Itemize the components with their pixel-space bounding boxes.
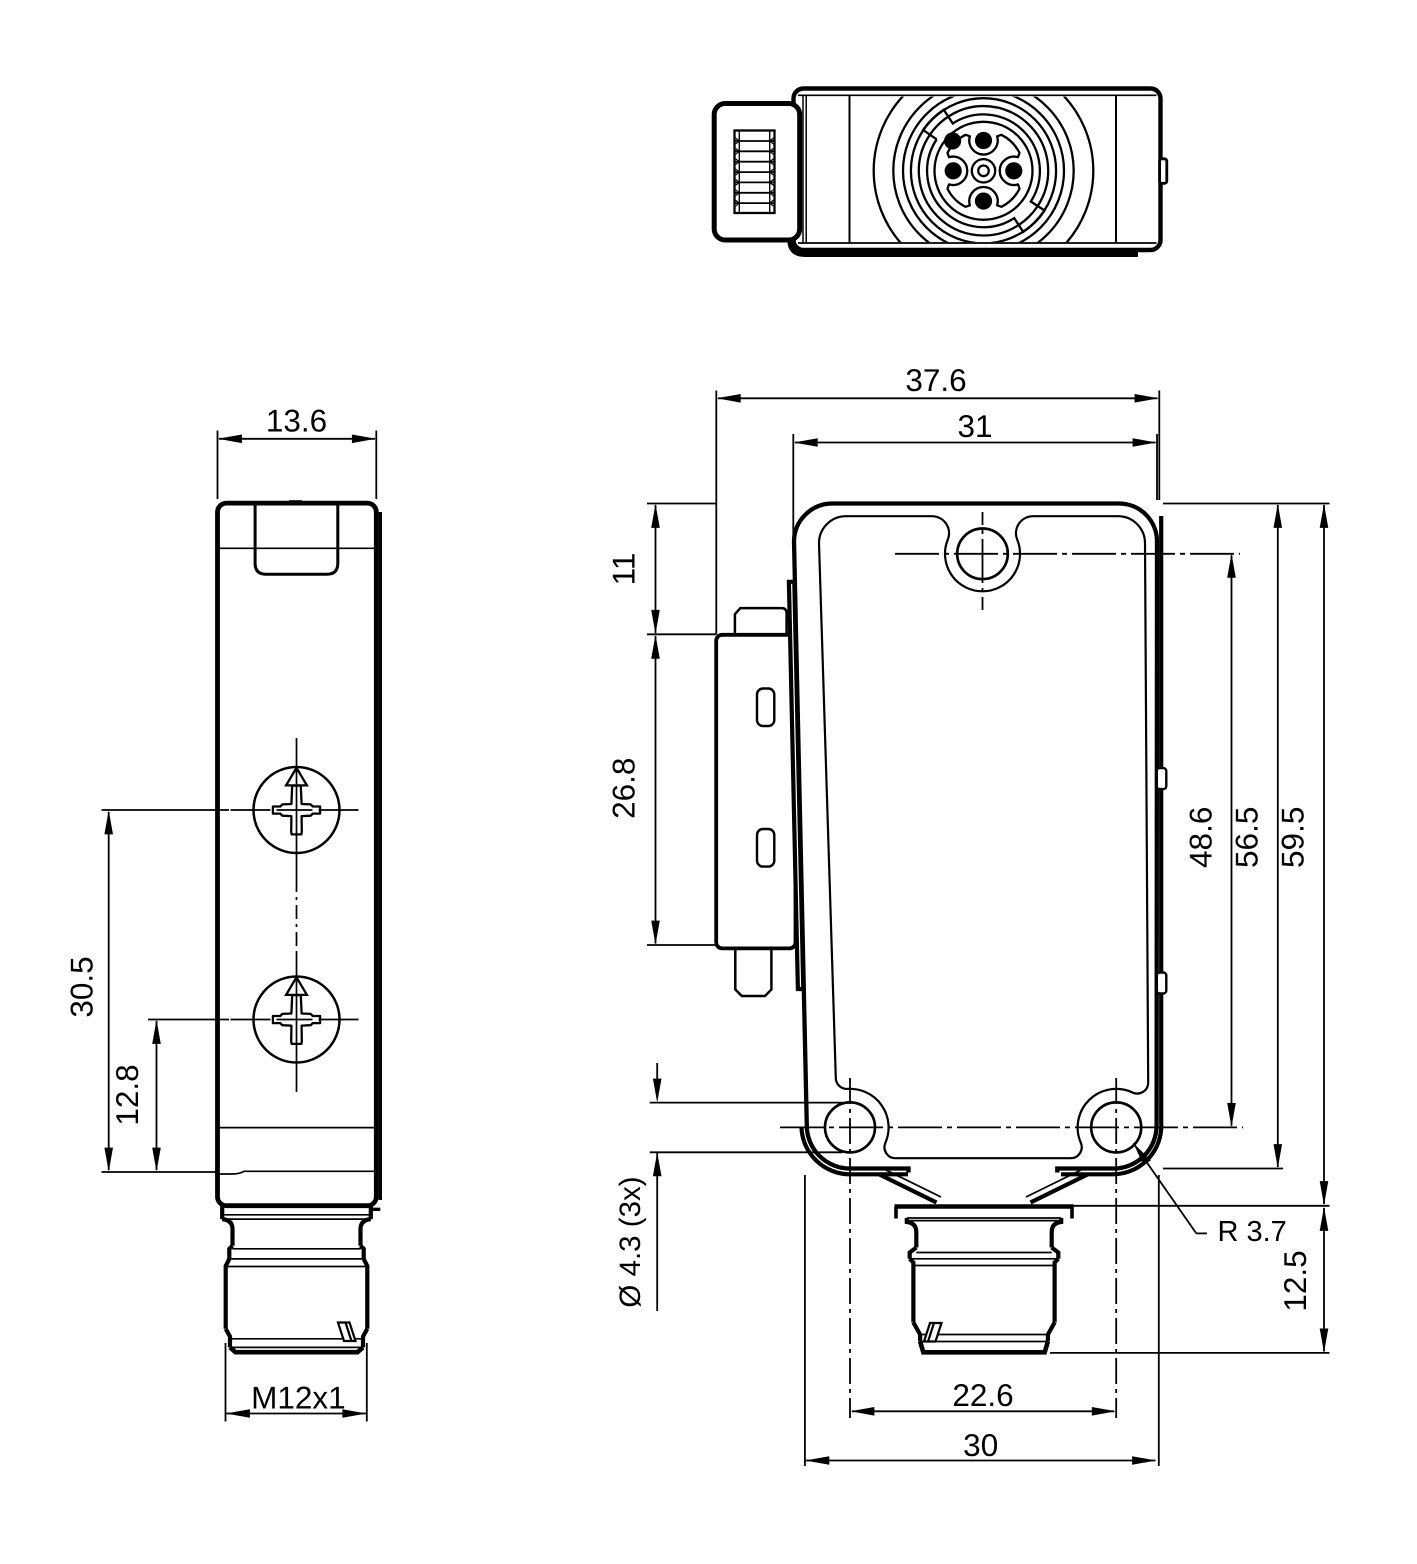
- svg-text:11: 11: [606, 553, 642, 586]
- svg-text:13.6: 13.6: [266, 403, 327, 439]
- svg-text:Ø 4.3 (3x): Ø 4.3 (3x): [614, 1176, 647, 1307]
- svg-text:26.8: 26.8: [606, 758, 642, 819]
- svg-text:31: 31: [957, 408, 992, 444]
- svg-text:12.8: 12.8: [109, 1064, 145, 1125]
- svg-text:30.5: 30.5: [63, 956, 99, 1017]
- svg-text:22.6: 22.6: [952, 1377, 1013, 1413]
- svg-text:12.5: 12.5: [1277, 1250, 1313, 1311]
- svg-text:R 3.7: R 3.7: [1218, 1216, 1287, 1248]
- svg-text:M12x1: M12x1: [251, 1380, 346, 1416]
- svg-text:30: 30: [963, 1427, 998, 1463]
- svg-text:48.6: 48.6: [1182, 807, 1218, 868]
- svg-text:37.6: 37.6: [905, 362, 966, 398]
- svg-text:59.5: 59.5: [1275, 807, 1311, 868]
- svg-text:56.5: 56.5: [1228, 807, 1264, 868]
